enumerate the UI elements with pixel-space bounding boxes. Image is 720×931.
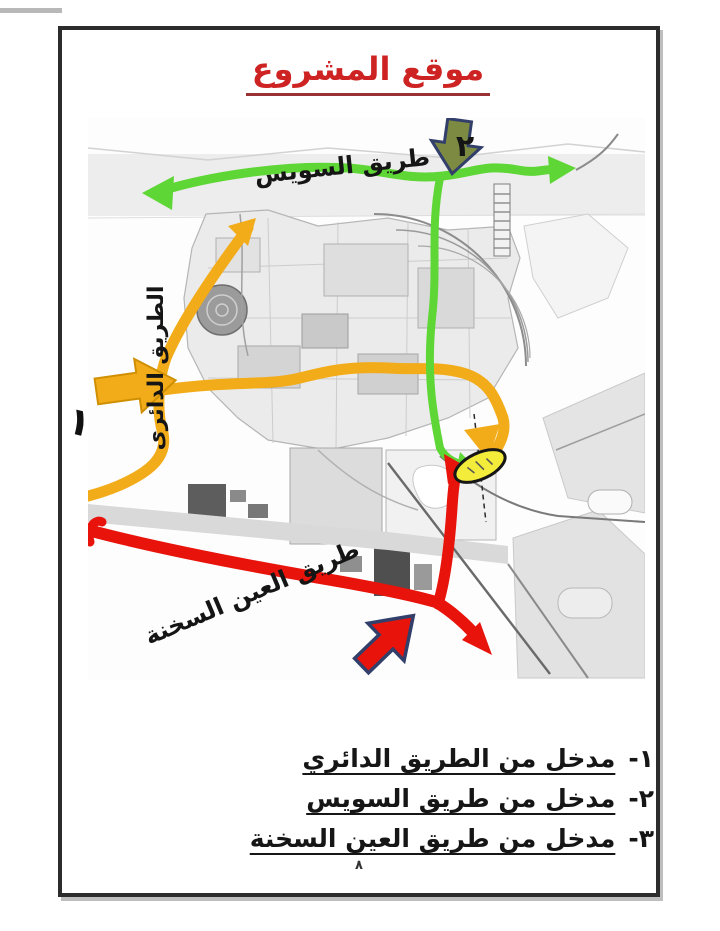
site-map: طريق السويس الطريق الدائرى طريق العين ال… [88,118,645,680]
map-marker-2: ٢ [456,129,474,164]
legend-item-text: مدخل من طريق السويس [306,784,615,813]
project-location-map: طريق السويس الطريق الدائرى طريق العين ال… [88,118,645,680]
entrance-legend: ١- مدخل من الطريق الدائري ٢- مدخل من طري… [250,744,654,864]
title-area: موقع المشروع [58,50,660,96]
legend-item-number: ١- [628,744,654,773]
scan-artifact [0,8,62,13]
page-number: ٨ [58,858,660,873]
legend-item-text: مدخل من الطريق الدائري [302,744,615,773]
page-title: موقع المشروع [246,50,490,96]
legend-item-suez-road: ٢- مدخل من طريق السويس [250,784,654,813]
legend-item-text: مدخل من طريق العين السخنة [250,824,616,853]
legend-item-sokhna-road: ٣- مدخل من طريق العين السخنة [250,824,654,853]
legend-item-number: ٣- [628,824,654,853]
legend-item-number: ٢- [628,784,654,813]
ring-road-label: الطريق الدائرى [144,286,169,451]
legend-item-ring-road: ١- مدخل من الطريق الدائري [250,744,654,773]
